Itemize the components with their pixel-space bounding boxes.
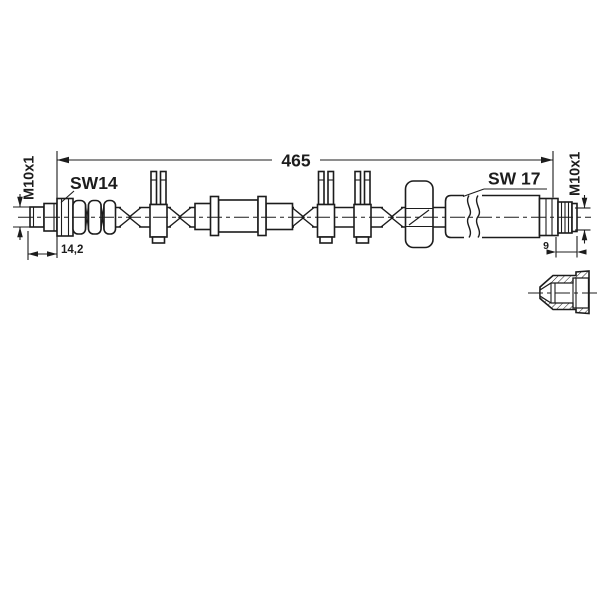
dimension-left-fitting-length: 14,2	[28, 231, 83, 260]
left-thread-label: M10x1	[22, 156, 38, 200]
right-fitting	[446, 193, 578, 240]
left-wrench-label: SW14	[70, 173, 118, 193]
right-thread-label: M10x1	[568, 152, 584, 196]
right-wrench-label: SW 17	[488, 169, 541, 189]
overall-length-label: 465	[281, 151, 310, 171]
label-right-wrench: SW 17	[463, 169, 547, 197]
grommet	[406, 181, 434, 248]
technical-drawing-page: 465 14,2 M10x1 M10x1 9	[0, 0, 600, 600]
center-sleeve	[195, 197, 293, 236]
right-thread-length-label: 9	[543, 240, 549, 252]
union-nut-section	[528, 271, 597, 314]
brake-hose-drawing: 465 14,2 M10x1 M10x1 9	[0, 0, 600, 600]
left-fitting-length-label: 14,2	[61, 244, 83, 256]
dimension-right-thread-length: 9	[543, 236, 586, 258]
mounting-clip	[150, 172, 167, 244]
mounting-clip	[354, 172, 371, 244]
mounting-clip	[318, 172, 335, 244]
